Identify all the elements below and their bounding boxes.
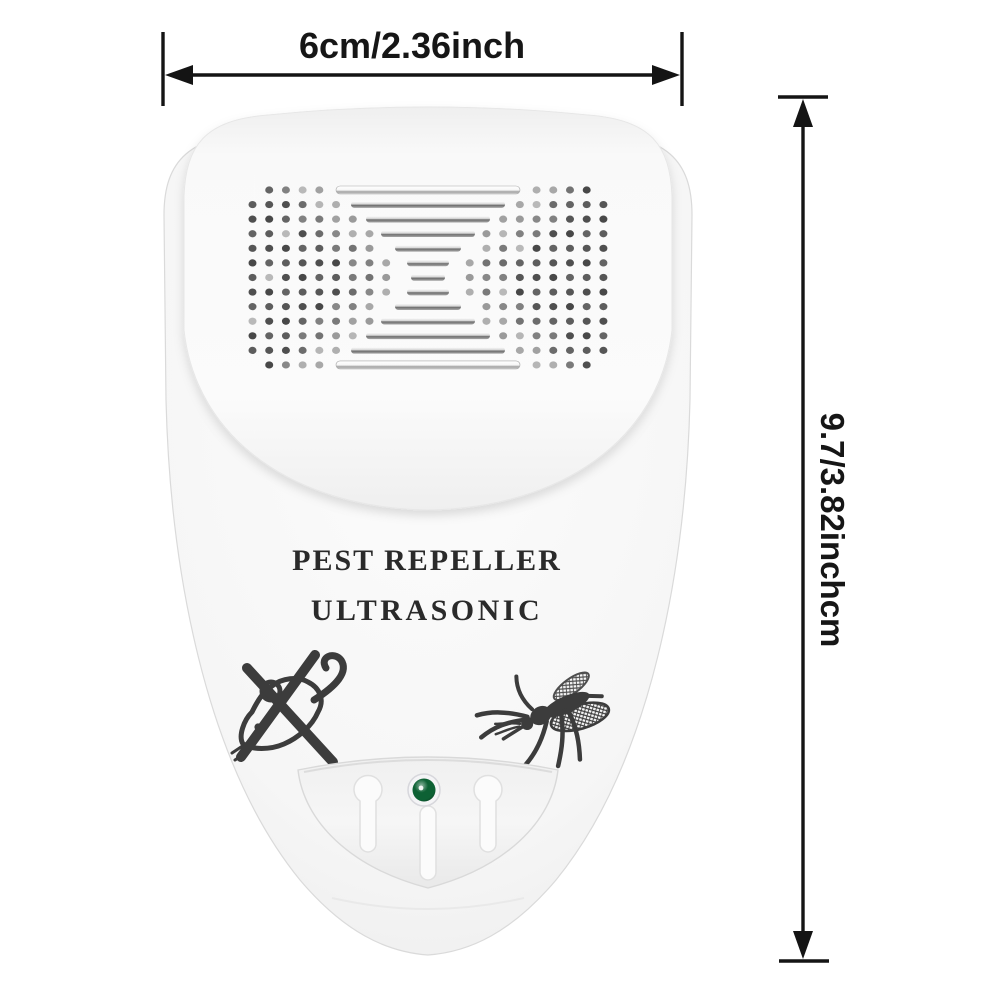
grille-dot bbox=[282, 186, 290, 193]
grille-dot bbox=[566, 274, 574, 281]
grille-dot bbox=[365, 274, 373, 281]
grille-dot bbox=[249, 303, 257, 310]
grille-dot bbox=[282, 361, 290, 368]
grille-dot bbox=[516, 245, 524, 252]
grille-dot bbox=[332, 274, 340, 281]
grille-dot bbox=[265, 259, 273, 266]
grille-dot bbox=[315, 216, 323, 223]
grille-dot bbox=[299, 288, 307, 295]
grille-dot bbox=[599, 303, 607, 310]
grille-dot bbox=[516, 347, 524, 354]
grille-dot bbox=[265, 347, 273, 354]
grille-dot bbox=[549, 361, 557, 368]
led-indicator bbox=[408, 774, 440, 806]
grille-dot bbox=[265, 230, 273, 237]
grille-slot bbox=[411, 274, 445, 281]
grille-dot bbox=[566, 288, 574, 295]
grille-dot bbox=[265, 216, 273, 223]
grille-dot bbox=[315, 303, 323, 310]
grille-slot bbox=[366, 333, 490, 340]
grille-dot bbox=[599, 259, 607, 266]
grille-dot bbox=[332, 318, 340, 325]
grille-dot bbox=[299, 347, 307, 354]
grille-dot bbox=[349, 274, 357, 281]
width-dimension-label: 6cm/2.36inch bbox=[299, 25, 525, 66]
grille-dot bbox=[549, 259, 557, 266]
grille-dot bbox=[299, 274, 307, 281]
grille-dot bbox=[349, 230, 357, 237]
grille-dot bbox=[499, 259, 507, 266]
grille-dot bbox=[549, 274, 557, 281]
grille-dot bbox=[315, 332, 323, 339]
grille-dot bbox=[583, 347, 591, 354]
grille-dot bbox=[299, 259, 307, 266]
grille-dot bbox=[349, 216, 357, 223]
grille-dot bbox=[299, 216, 307, 223]
grille-dot bbox=[332, 288, 340, 295]
scene: PEST REPELLER ULTRASONIC bbox=[0, 0, 1000, 1000]
grille-dot bbox=[466, 259, 474, 266]
grille-dot bbox=[583, 303, 591, 310]
grille-dot bbox=[282, 230, 290, 237]
grille-dot bbox=[499, 274, 507, 281]
grille-dot bbox=[315, 245, 323, 252]
brand-line1: PEST REPELLER bbox=[292, 544, 562, 577]
grille-slot bbox=[366, 216, 490, 223]
grille-dot bbox=[533, 332, 541, 339]
grille-dot bbox=[533, 274, 541, 281]
grille-dot bbox=[265, 303, 273, 310]
grille-dot bbox=[499, 318, 507, 325]
grille-dot bbox=[583, 318, 591, 325]
grille-dot bbox=[282, 303, 290, 310]
grille-slot bbox=[407, 289, 449, 296]
grille-dot bbox=[482, 318, 490, 325]
grille-dot bbox=[599, 201, 607, 208]
grille-dot bbox=[533, 318, 541, 325]
grille-dot bbox=[583, 274, 591, 281]
grille-dot bbox=[282, 332, 290, 339]
grille-dot bbox=[332, 245, 340, 252]
grille-dot bbox=[549, 318, 557, 325]
grille-dot bbox=[466, 274, 474, 281]
grille-dot bbox=[516, 259, 524, 266]
grille-dot bbox=[299, 332, 307, 339]
grille-dot bbox=[365, 259, 373, 266]
grille-slot bbox=[336, 186, 520, 194]
height-dimension: 9.7/3.82inchcm bbox=[778, 97, 851, 961]
grille-dot bbox=[516, 318, 524, 325]
grille-dot bbox=[583, 245, 591, 252]
grille-dot bbox=[332, 259, 340, 266]
grille-dot bbox=[583, 332, 591, 339]
grille-dot bbox=[533, 201, 541, 208]
grille-dot bbox=[299, 318, 307, 325]
grille-dot bbox=[365, 288, 373, 295]
grille-dot bbox=[533, 288, 541, 295]
grille-dot bbox=[315, 259, 323, 266]
grille-dot bbox=[282, 318, 290, 325]
grille-dot bbox=[566, 347, 574, 354]
grille-dot bbox=[332, 201, 340, 208]
led-shine bbox=[413, 779, 436, 802]
grille-dot bbox=[516, 303, 524, 310]
grille-slot bbox=[351, 201, 505, 208]
grille-dot bbox=[249, 259, 257, 266]
grille-dot bbox=[516, 288, 524, 295]
grille-dot bbox=[249, 201, 257, 208]
grille-dot bbox=[499, 288, 507, 295]
product-image: PEST REPELLER ULTRASONIC bbox=[0, 0, 1000, 1000]
grille-dot bbox=[549, 216, 557, 223]
grille-dot bbox=[599, 230, 607, 237]
grille-slot bbox=[351, 347, 505, 354]
grille-dot bbox=[599, 318, 607, 325]
grille-dot bbox=[599, 274, 607, 281]
grille-dot bbox=[549, 288, 557, 295]
grille-dot bbox=[249, 318, 257, 325]
grille-dot bbox=[533, 303, 541, 310]
grille-dot bbox=[516, 230, 524, 237]
grille-slot bbox=[336, 361, 520, 369]
grille-dot bbox=[382, 288, 390, 295]
grille-dot bbox=[249, 347, 257, 354]
grille-dot bbox=[482, 245, 490, 252]
grille-dot bbox=[299, 245, 307, 252]
grille-dot bbox=[566, 216, 574, 223]
grille-dot bbox=[533, 259, 541, 266]
height-dimension-label: 9.7/3.82inchcm bbox=[814, 413, 851, 648]
grille-dot bbox=[466, 288, 474, 295]
grille-dot bbox=[566, 230, 574, 237]
grille-dot bbox=[533, 216, 541, 223]
grille-dot bbox=[499, 303, 507, 310]
grille-slot bbox=[407, 260, 449, 267]
grille-dot bbox=[349, 303, 357, 310]
height-arrow-top bbox=[793, 99, 813, 127]
grille-dot bbox=[299, 361, 307, 368]
grille-dot bbox=[315, 347, 323, 354]
grille-dot bbox=[599, 347, 607, 354]
grille-dot bbox=[249, 274, 257, 281]
grille-dot bbox=[349, 288, 357, 295]
grille-dot bbox=[549, 332, 557, 339]
grille-dot bbox=[583, 259, 591, 266]
grille-dot bbox=[599, 288, 607, 295]
grille-dot bbox=[332, 347, 340, 354]
grille-dot bbox=[516, 274, 524, 281]
grille-slot bbox=[395, 245, 461, 252]
grille-dot bbox=[332, 303, 340, 310]
grille-dot bbox=[499, 230, 507, 237]
grille-dot bbox=[566, 245, 574, 252]
grille-dot bbox=[365, 230, 373, 237]
grille-dot bbox=[382, 259, 390, 266]
grille-dot bbox=[499, 216, 507, 223]
grille-dot bbox=[282, 274, 290, 281]
grille-dot bbox=[282, 288, 290, 295]
grille-dot bbox=[566, 318, 574, 325]
grille-dot bbox=[299, 230, 307, 237]
grille-dot bbox=[566, 332, 574, 339]
grille-dot bbox=[282, 201, 290, 208]
grille-dot bbox=[599, 332, 607, 339]
grille-dot bbox=[566, 201, 574, 208]
grille-dot bbox=[265, 332, 273, 339]
grille-dot bbox=[249, 230, 257, 237]
grille-dot bbox=[533, 230, 541, 237]
grille-dot bbox=[349, 245, 357, 252]
grille-dot bbox=[583, 230, 591, 237]
grille-dot bbox=[482, 288, 490, 295]
grille-dot bbox=[282, 216, 290, 223]
grille-dot bbox=[583, 288, 591, 295]
grille-dot bbox=[265, 274, 273, 281]
grille-dot bbox=[583, 361, 591, 368]
grille-dot bbox=[549, 245, 557, 252]
grille-dot bbox=[315, 318, 323, 325]
grille-dot bbox=[349, 332, 357, 339]
grille-dot bbox=[599, 245, 607, 252]
width-dimension: 6cm/2.36inch bbox=[163, 25, 682, 106]
grille-dot bbox=[499, 332, 507, 339]
grille-dot bbox=[349, 318, 357, 325]
grille-dot bbox=[332, 230, 340, 237]
grille-dot bbox=[249, 332, 257, 339]
grille-dot bbox=[566, 361, 574, 368]
grille-dot bbox=[599, 216, 607, 223]
grille-dot bbox=[482, 274, 490, 281]
grille-dot bbox=[332, 216, 340, 223]
grille-dot bbox=[349, 259, 357, 266]
grille-dot bbox=[282, 245, 290, 252]
grille-dot bbox=[299, 201, 307, 208]
grille-dot bbox=[249, 245, 257, 252]
grille-dot bbox=[549, 230, 557, 237]
grille-dot bbox=[299, 186, 307, 193]
grille-dot bbox=[315, 274, 323, 281]
width-arrow-right bbox=[652, 65, 680, 85]
grille-dot bbox=[549, 303, 557, 310]
grille-dot bbox=[315, 361, 323, 368]
grille-dot bbox=[482, 230, 490, 237]
grille-dot bbox=[332, 332, 340, 339]
brand-line2: ULTRASONIC bbox=[311, 594, 543, 627]
grille-dot bbox=[549, 347, 557, 354]
grille-dot bbox=[583, 216, 591, 223]
grille-dot bbox=[533, 245, 541, 252]
grille-dot bbox=[315, 186, 323, 193]
grille-dot bbox=[249, 216, 257, 223]
grille-dot bbox=[265, 318, 273, 325]
grille-dot bbox=[249, 288, 257, 295]
grille-dot bbox=[549, 201, 557, 208]
grille-dot bbox=[265, 361, 273, 368]
grille-dot bbox=[315, 288, 323, 295]
grille-dot bbox=[533, 347, 541, 354]
grille-dot bbox=[566, 303, 574, 310]
groove-center bbox=[420, 806, 436, 880]
grille-dot bbox=[583, 201, 591, 208]
grille-dot bbox=[499, 245, 507, 252]
grille-slot bbox=[395, 303, 461, 310]
grille-dot bbox=[566, 186, 574, 193]
grille-dot bbox=[282, 347, 290, 354]
grille-dot bbox=[365, 303, 373, 310]
grille-dot bbox=[566, 259, 574, 266]
grille-dot bbox=[265, 201, 273, 208]
grille-dot bbox=[516, 216, 524, 223]
grille-dot bbox=[549, 186, 557, 193]
grille-dot bbox=[265, 245, 273, 252]
grille-dot bbox=[365, 318, 373, 325]
grille-dot bbox=[265, 186, 273, 193]
grille-dot bbox=[299, 303, 307, 310]
grille-dot bbox=[533, 186, 541, 193]
grille-dot bbox=[583, 186, 591, 193]
led-highlight bbox=[419, 786, 424, 791]
grille-dot bbox=[482, 259, 490, 266]
height-arrow-bottom bbox=[793, 931, 813, 959]
grille-slot bbox=[381, 318, 475, 325]
grille-dot bbox=[382, 274, 390, 281]
pest-repeller-device: PEST REPELLER ULTRASONIC bbox=[164, 107, 692, 955]
grille-dot bbox=[265, 288, 273, 295]
grille-dot bbox=[516, 332, 524, 339]
grille-slot bbox=[381, 230, 475, 237]
width-arrow-left bbox=[165, 65, 193, 85]
grille-dot bbox=[315, 230, 323, 237]
grille-dot bbox=[482, 303, 490, 310]
grille-dot bbox=[315, 201, 323, 208]
grille-dot bbox=[282, 259, 290, 266]
grille-dot bbox=[516, 201, 524, 208]
grille-dot bbox=[365, 245, 373, 252]
grille-dot bbox=[533, 361, 541, 368]
